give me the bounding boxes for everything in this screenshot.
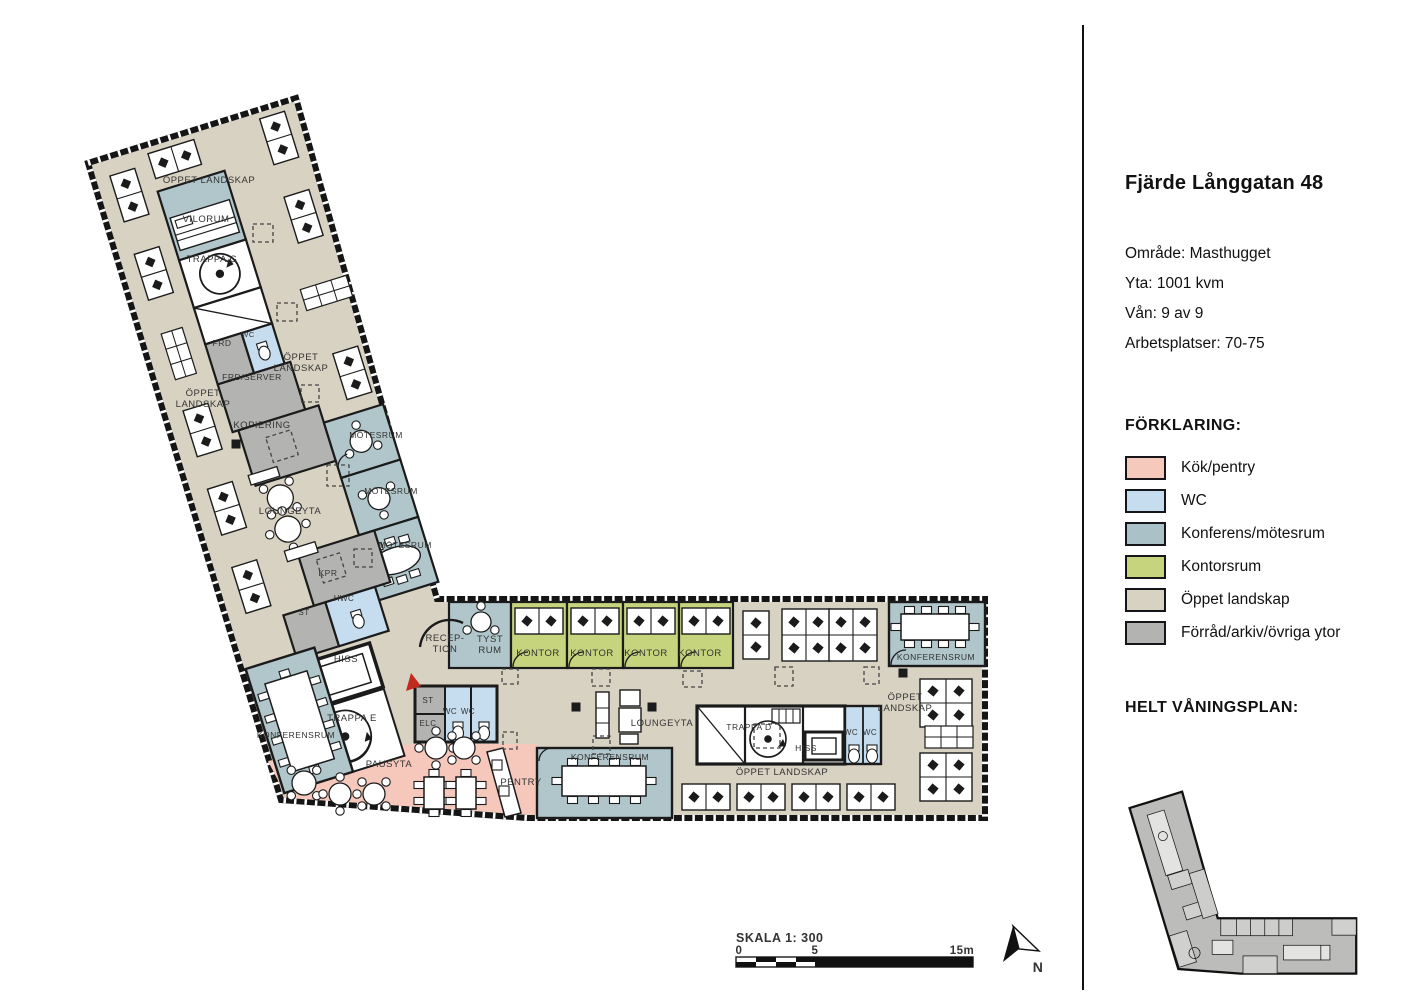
label-kopiering: KOPIERING [233,420,290,431]
label-pausyta: PAUSYTA [366,759,413,770]
label-oppet-landskap-nw: ÖPPET LANDSKAP [163,175,255,186]
label-trappa-d: TRAPPA D [726,722,771,732]
label-kontor-1: KONTOR [516,648,559,659]
legend-swatch [1125,555,1166,579]
desk-pair [682,784,730,810]
label-tyst-rum: TYSTRUM [477,634,503,656]
round-table [287,766,321,800]
scale-tick-5: 5 [812,945,819,957]
page-title: Fjärde Långgatan 48 [1125,172,1403,195]
legend-item: Kök/pentry [1125,456,1403,480]
scale-tick-0: 0 [736,945,743,957]
conference-table [552,759,656,804]
desk-pair [571,608,619,634]
column [232,440,241,449]
label-elc: ELC [419,719,436,728]
label-frd: FRD [213,338,232,348]
legend-swatch [1125,621,1166,645]
label-hiss-wing: HISS [334,654,358,665]
label-hwc: HWC [334,594,355,603]
label-kontor-3: KONTOR [624,648,667,659]
legend-label: Förråd/arkiv/övriga ytor [1181,624,1340,642]
property-info: Område: MasthuggetYta: 1001 kvmVån: 9 av… [1125,239,1403,359]
label-st-wing: ST [298,608,309,617]
info-line: Yta: 1001 kvm [1125,269,1403,299]
info-line: Arbetsplatser: 70-75 [1125,329,1403,359]
scale-title: SKALA 1: 300 [736,931,824,945]
label-hiss: HISS [795,743,817,753]
legend-swatch [1125,489,1166,513]
desk-pair [682,608,730,634]
storage-shelf [925,726,973,748]
label-frd-server: FRD/SERVER [222,372,282,382]
lounge-furniture [620,734,638,744]
legend-item: WC [1125,489,1403,513]
legend-label: Öppet landskap [1181,591,1290,609]
column [648,703,657,712]
desk-pair [847,784,895,810]
legend-label: Konferens/mötesrum [1181,525,1325,543]
legend-swatch [1125,522,1166,546]
label-vilorum: VILORUM [183,214,230,225]
label-trappa-e: TRAPPA E [327,713,377,724]
info-line: Område: Masthugget [1125,239,1403,269]
desk-pair [515,608,563,634]
column [899,669,908,678]
sidebar: Fjärde Långgatan 48 Område: MasthuggetYt… [1084,0,1403,992]
label-wc-wing: WC [241,330,255,339]
shelf-unit [596,692,609,738]
legend-item: Öppet landskap [1125,588,1403,612]
toilet-symbol [867,745,878,763]
lounge-furniture [620,690,640,706]
legend-item: Konferens/mötesrum [1125,522,1403,546]
round-table [448,732,480,764]
column [572,703,581,712]
toilet-symbol [849,745,860,763]
label-kpr: KPR [319,568,338,578]
legend-item: Kontorsrum [1125,555,1403,579]
legend-title: FÖRKLARING: [1125,417,1403,435]
info-line: Vån: 9 av 9 [1125,299,1403,329]
label-motesrum-1: MÖTESRUM [349,430,403,440]
floorplan-drawing: ÖPPET LANDSKAPVILORUMTRAPPA GFRDWCÖPPETL… [0,0,1083,992]
label-motesrum-3: MÖTESRUM [378,540,432,550]
round-table [358,778,390,810]
label-wc-4: WC [863,728,877,737]
label-loungeyta-center: LOUNGEYTA [631,718,694,729]
legend-swatch [1125,456,1166,480]
overview-title: HELT VÅNINGSPLAN: [1125,699,1403,717]
label-motesrum-2: MÖTESRUM [364,486,418,496]
label-wc-2: WC [461,707,475,716]
overview-thumbnail [1125,787,1360,978]
scale-tick-15m: 15m [950,945,975,957]
label-konferensrum-sw: KONFERENSRUM [257,730,335,740]
label-oppet-landskap-s: ÖPPET LANDSKAP [736,767,828,778]
desk-pair [743,611,769,659]
desk-cluster [829,609,877,661]
legend-list: Kök/pentryWCKonferens/mötesrumKontorsrum… [1125,456,1403,645]
legend-label: WC [1181,492,1207,510]
label-wc-3: WC [844,728,858,737]
label-pentry: PENTRY [500,777,542,788]
desk-pair [627,608,675,634]
desk-pair [792,784,840,810]
floorplan-page: { "sidebar": { "title": "Fjärde Långgata… [0,0,1403,992]
label-kontor-4: KONTOR [678,648,721,659]
label-loungeyta-wing: LOUNGEYTA [259,506,322,517]
legend-item: Förråd/arkiv/övriga ytor [1125,621,1403,645]
label-trappa-g: TRAPPA G [187,254,238,265]
label-kontor-2: KONTOR [570,648,613,659]
north-label: N [1033,959,1044,975]
legend-label: Kontorsrum [1181,558,1261,576]
label-wc-1: WC [443,707,457,716]
desk-pair [737,784,785,810]
desk-cluster [782,609,830,661]
label-st: ST [422,696,433,705]
label-konferensrum-ne: KONFERENSRUM [897,652,975,662]
label-konferensrum-s: KONFERENSRUM [571,752,649,762]
legend-swatch [1125,588,1166,612]
legend-label: Kök/pentry [1181,459,1255,477]
desk-cluster [920,753,972,801]
